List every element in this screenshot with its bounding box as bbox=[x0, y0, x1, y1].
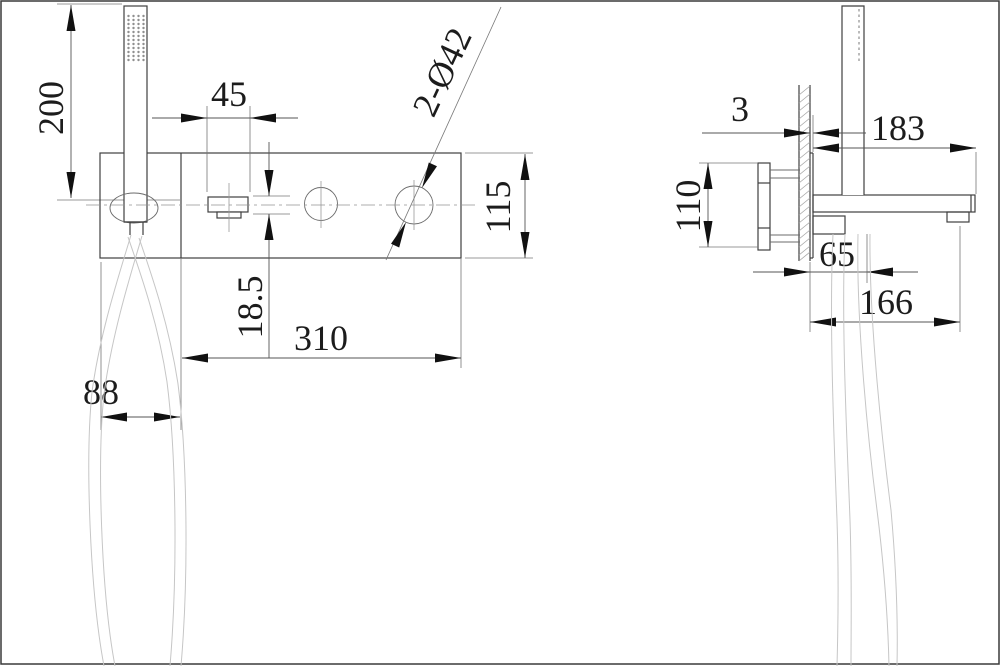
dim-label-183: 183 bbox=[871, 108, 925, 148]
dim-label-45: 45 bbox=[211, 74, 247, 114]
dim-label-115: 115 bbox=[478, 181, 518, 234]
dim-label-18-5: 18.5 bbox=[230, 276, 270, 339]
dim-label-88: 88 bbox=[83, 372, 119, 412]
dim-label-3: 3 bbox=[731, 89, 749, 129]
technical-drawing: 200 bbox=[0, 0, 1000, 666]
dim-label-200: 200 bbox=[31, 81, 71, 135]
hand-shower-side bbox=[842, 6, 864, 195]
dim-label-310: 310 bbox=[294, 318, 348, 358]
dim-label-110: 110 bbox=[668, 180, 708, 233]
dim-label-166: 166 bbox=[859, 282, 913, 322]
dim-label-65: 65 bbox=[819, 234, 855, 274]
